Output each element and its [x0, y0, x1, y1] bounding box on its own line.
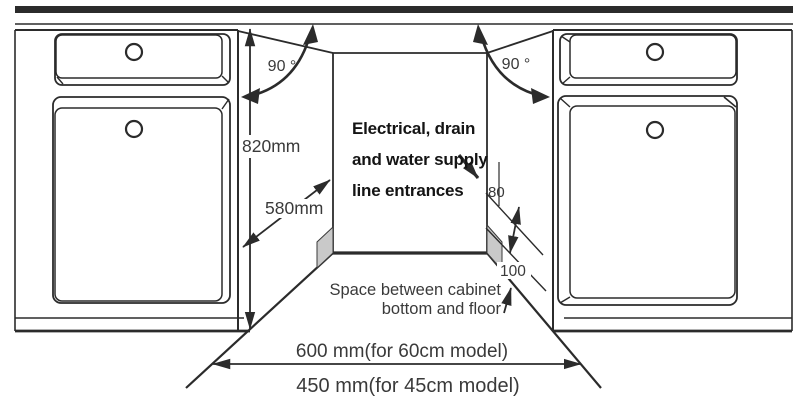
niche-top-left-perspective-line — [238, 31, 333, 53]
entrances-note-line2: and water supply — [352, 150, 488, 169]
right-door-bevel-tl — [560, 98, 570, 107]
right-drawer-knob — [647, 44, 663, 60]
right-door-face — [570, 106, 735, 298]
right-door-bevel-bl — [560, 297, 570, 303]
left-angle-label: 90 ° — [268, 58, 297, 75]
entrance-double-arrow — [510, 207, 519, 253]
diagram-canvas: 90 ° 90 ° 820mm 580mm 80 100 Electrical,… — [0, 0, 810, 412]
right-cabinet — [558, 34, 737, 305]
right-arc-corner-arrow-icon — [531, 88, 550, 104]
right-arc-up-arrow-icon — [473, 24, 488, 45]
countertop-front-edge — [15, 6, 793, 13]
right-drawer-bevel-tl — [561, 36, 570, 42]
left-drawer-face — [56, 35, 222, 78]
right-angle-label: 90 ° — [502, 56, 531, 73]
floor-space-note-line2: bottom and floor — [382, 300, 502, 318]
left-cabinet — [53, 34, 230, 303]
floor-space-pointer-arrow — [504, 288, 511, 313]
left-wall-shaded-space — [317, 227, 333, 268]
left-arc-up-arrow-icon — [303, 24, 318, 45]
bottom-space-label: 100 — [500, 263, 526, 280]
width-45cm-label: 450 mm(for 45cm model) — [296, 375, 519, 397]
depth-label: 580mm — [265, 198, 323, 218]
left-door-knob — [126, 121, 142, 137]
left-door-bevel-tr — [222, 99, 229, 109]
entrances-note-line1: Electrical, drain — [352, 119, 475, 138]
width-60cm-label: 600 mm(for 60cm model) — [296, 341, 508, 362]
niche-bottom-left-perspective-line — [186, 253, 333, 388]
countertop — [15, 6, 793, 24]
installation-diagram: 90 ° 90 ° 820mm 580mm 80 100 Electrical,… — [0, 0, 810, 412]
left-drawer-bevel-br — [222, 76, 229, 83]
right-drawer-face — [570, 35, 736, 78]
right-drawer-bevel-bl — [562, 77, 570, 84]
right-door-knob — [647, 122, 663, 138]
entrances-note-line3: line entrances — [352, 181, 464, 200]
niche-top-right-perspective-line — [487, 31, 553, 53]
left-door-face — [55, 108, 222, 301]
left-drawer-knob — [126, 44, 142, 60]
entrance-offset-label: 80 — [488, 184, 505, 201]
height-label: 820mm — [242, 136, 300, 156]
floor-space-note-line1: Space between cabinet — [329, 281, 501, 299]
floor — [15, 318, 792, 331]
